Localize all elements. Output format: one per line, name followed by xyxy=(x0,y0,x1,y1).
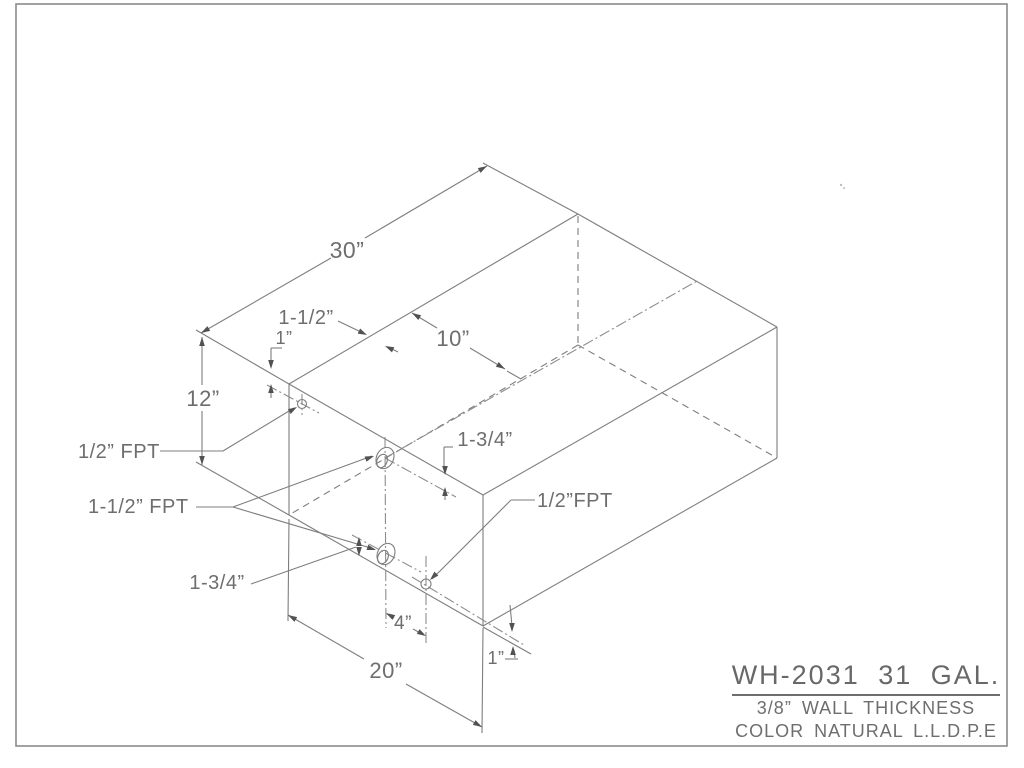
ext-30-right xyxy=(483,163,578,214)
leader-half-fpt-diag xyxy=(223,408,294,451)
centerline-fitting-b-diag xyxy=(352,535,421,572)
arrow-1in-down xyxy=(268,360,274,369)
material-color-note: COLOR NATURAL L.L.D.P.E xyxy=(718,721,1014,742)
arrow-1-3-4-top-down xyxy=(442,466,448,475)
dim-1-1-2-text: 1-1/2” xyxy=(278,307,333,329)
dim-1in-top-text: 1” xyxy=(275,328,292,348)
dim-10-text: 10” xyxy=(436,326,469,351)
centerline-top-face-long xyxy=(385,281,697,458)
arrow-tail-1in-br-down xyxy=(510,605,512,626)
dim-20-line-a xyxy=(288,615,364,659)
arrow-12-bottom xyxy=(199,456,205,465)
dim-20-line-b xyxy=(406,684,482,727)
edge-bottom-back-right-hidden xyxy=(578,345,777,458)
sheet-border xyxy=(16,4,1007,746)
label-1-1-2-fpt: 1-1/2” FPT xyxy=(88,496,189,518)
model-number: WH-2031 31 GAL. xyxy=(732,660,1001,696)
edge-bottom-front-right xyxy=(483,458,777,626)
arrow-1in-br-down xyxy=(509,623,515,632)
title-block: WH-2031 31 GAL. 3/8” WALL THICKNESS COLO… xyxy=(718,660,1014,742)
edge-top-front-right xyxy=(483,327,777,495)
arrow-1in-br-up xyxy=(510,646,516,655)
arrow-30-left xyxy=(200,326,211,335)
dim-1in-br-text: 1” xyxy=(487,648,504,668)
leader-half-fpt2-diag xyxy=(432,500,511,579)
leader-fitting-b xyxy=(233,507,374,549)
dim-1-3-4-bottom-text: 1-3/4” xyxy=(189,572,244,594)
edge-top-back-right xyxy=(578,214,777,327)
wall-thickness-note: 3/8” WALL THICKNESS xyxy=(718,698,1014,719)
arrow-1-3-4-top-up xyxy=(442,487,448,496)
isometric-tank-drawing: 30”12”10”1-1/2”1”1/2” FPT1-1/2” FPT1-3/4… xyxy=(0,0,1024,768)
paper-speck-2 xyxy=(843,187,845,189)
dim-30-text: 30” xyxy=(330,237,365,263)
arrow-fitting-a xyxy=(365,453,375,461)
arrow-1-3-4-bot-down xyxy=(356,547,362,556)
dim-20-text: 20” xyxy=(369,658,402,683)
dim-10-overshoot xyxy=(507,371,521,379)
arrow-1-3-4-bot-up xyxy=(356,537,362,546)
edge-bottom-back-left-hidden xyxy=(289,345,578,515)
ext-20-left xyxy=(288,519,289,621)
arrow-1-1-2-b xyxy=(384,343,395,352)
dim-4-text: 4” xyxy=(394,613,412,634)
ext-20-right xyxy=(482,628,483,733)
label-half-fpt-left: 1/2” FPT xyxy=(78,441,160,463)
arrow-10-right xyxy=(496,362,507,371)
dim-30-line-b xyxy=(365,166,487,238)
label-half-fpt-right: 1/2”FPT xyxy=(537,490,613,512)
leader-fitting-a xyxy=(233,456,372,507)
drawing-sheet: 30”12”10”1-1/2”1”1/2” FPT1-1/2” FPT1-3/4… xyxy=(0,0,1024,768)
arrow-1-1-2 xyxy=(358,329,369,338)
centerline-drain-diag xyxy=(412,577,524,645)
dim-1-3-4-top-text: 1-3/4” xyxy=(457,429,512,451)
edge-top-front-left xyxy=(289,384,483,495)
dim-12-text: 12” xyxy=(186,386,219,411)
arrow-12-top xyxy=(199,337,205,346)
leader-1-3-4-bottom xyxy=(251,547,356,584)
paper-speck-1 xyxy=(840,184,842,186)
